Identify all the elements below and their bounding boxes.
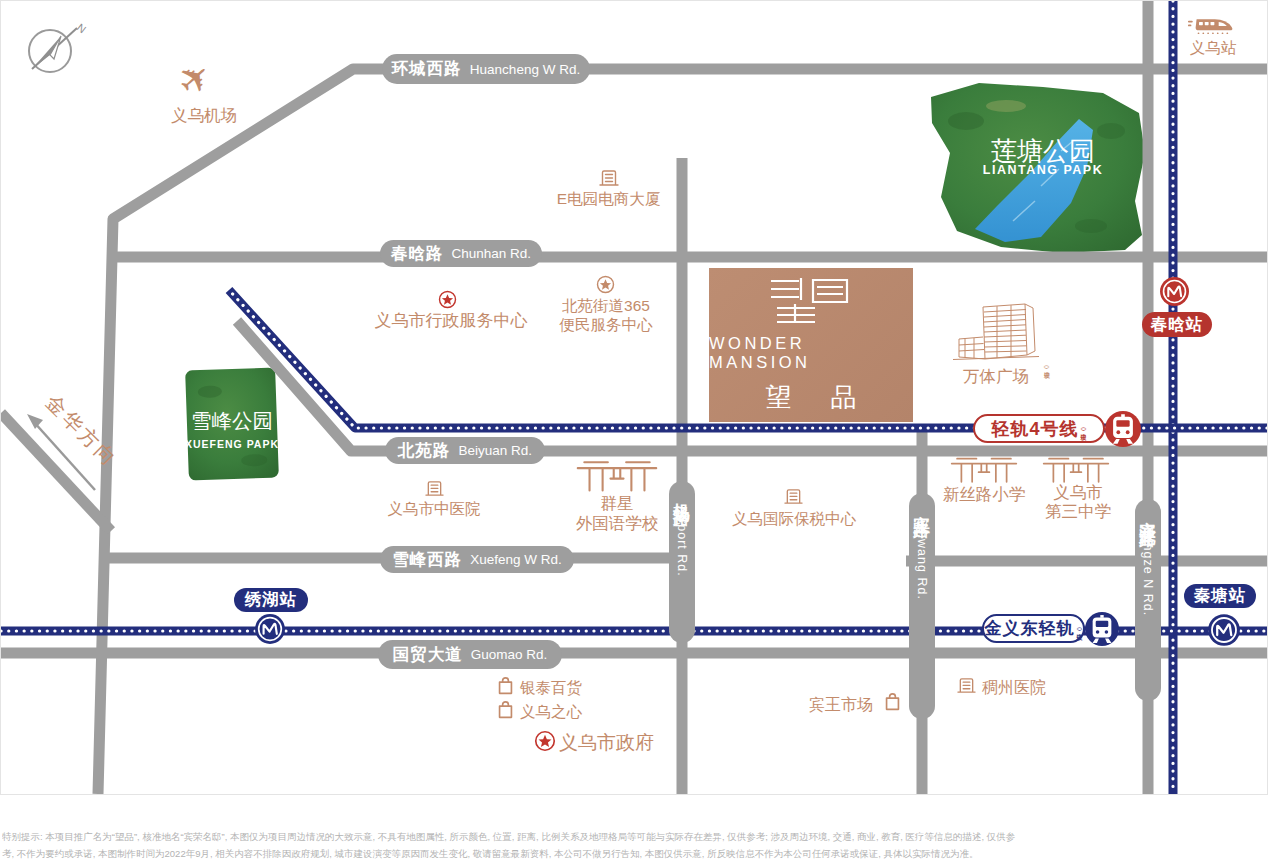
station-qintang: 秦塘站 (1184, 584, 1256, 608)
metro-logo-icon (254, 613, 286, 645)
jinyidong-badge: 金义东轻轨 (建设中) (982, 614, 1085, 643)
poi-zhongyiyuan: 义乌市中医院 (384, 500, 484, 518)
poi-chouzhou: 稠州医院 (982, 679, 1046, 697)
star-icon (596, 275, 615, 294)
road-label-binwang: 宾王路 Binwang Rd. (909, 493, 935, 719)
poi-wanti-note: (建设中) (1044, 365, 1050, 369)
train-icon (1085, 612, 1119, 646)
project-name-en: WONDER MANSION (709, 334, 913, 372)
rail4-badge: 轻轨4号线 (建设中) (973, 414, 1105, 443)
road-label-chunhan: 春晗路 Chunhan Rd. (380, 240, 542, 267)
station-chunhan: 春晗站 (1142, 312, 1212, 337)
poi-qunxing-line2: 外国语学校 (557, 514, 677, 533)
road-label-beiyuan: 北苑路 Beiyuan Rd. (385, 437, 545, 464)
poi-sanzhong-line2: 第三中学 (1028, 502, 1128, 521)
disclaimer-line2: 考, 不作为要约或承诺, 本图制作时间为2022年9月, 相关内容不排除因政府规… (2, 845, 1266, 862)
metro-logo-icon (1159, 276, 1190, 307)
poi-sanzhong-line1: 义乌市 (1028, 483, 1128, 502)
xuefeng-park-label: 雪峰公园 (182, 407, 282, 435)
poi-yiwuzhixin: 义乌之心 (520, 703, 582, 721)
train-icon (1105, 411, 1141, 447)
disclaimer-line1: 特别提示: 本项目推广名为“望品”, 核准地名“宾荣名邸”, 本图仅为项目周边情… (2, 828, 1266, 845)
building-icon (599, 167, 619, 187)
star-icon (534, 730, 556, 752)
poi-xingzheng-center: 义乌市行政服务中心 (356, 311, 546, 331)
poi-shizhengfu: 义乌市政府 (559, 732, 654, 754)
shopping-bag-icon (497, 676, 514, 695)
poi-binwang-market: 宾王市场 (809, 696, 873, 714)
poi-b365-line1: 北苑街道365 (546, 297, 666, 315)
poi-b365-line2: 便民服务中心 (546, 316, 666, 334)
school-gate-icon (573, 459, 661, 493)
poi-baoshui: 义乌国际保税中心 (724, 510, 864, 528)
station-xiuhu: 绣湖站 (234, 588, 308, 612)
road-label-zongze: 宗泽北路 Zongze N Rd. (1135, 499, 1161, 701)
wanti-building-icon (949, 299, 1045, 369)
building-icon (784, 486, 803, 505)
poi-wanti: 万体广场 (951, 367, 1041, 386)
shopping-bag-icon (884, 692, 901, 711)
school-gate-icon (1041, 456, 1111, 484)
poi-edianyuan: E电园电商大厦 (531, 190, 686, 208)
xuefeng-park-label-en: XUEFENG PAPK (182, 438, 282, 450)
road-label-guomao: 国贸大道 Guomao Rd. (378, 640, 562, 669)
shopping-bag-icon (497, 700, 514, 719)
compass-n-label: N (75, 21, 89, 35)
project-logo-icon (763, 276, 859, 324)
project-name-cn: 望 品 (749, 380, 872, 415)
poi-qunxing-line1: 群星 (557, 494, 677, 513)
star-icon (438, 290, 457, 309)
hospital-building-icon (425, 478, 444, 497)
metro-logo-icon (1207, 613, 1241, 647)
map-canvas: N ✈ 义乌机场 义乌站 环城西路 Huancheng W Rd. 春晗路 Ch… (0, 0, 1268, 863)
poi-yintai: 银泰百货 (520, 679, 582, 697)
poi-yiwu-airport: 义乌机场 (149, 106, 259, 125)
project-block: WONDER MANSION 望 品 (709, 268, 913, 422)
poi-xinsilu: 新丝路小学 (934, 485, 1034, 504)
liantang-park-label-en: LIANTANG PAPK (963, 163, 1123, 177)
road-label-huancheng: 环城西路 Huancheng W Rd. (382, 54, 590, 84)
disclaimer: 特别提示: 本项目推广名为“望品”, 核准地名“宾荣名邸”, 本图仅为项目周边情… (2, 828, 1266, 862)
poi-yiwu-station: 义乌站 (1183, 39, 1243, 57)
compass-icon: N (23, 15, 89, 81)
hospital-building-icon (957, 675, 976, 694)
road-label-xuefeng-w: 雪峰西路 Xuefeng W Rd. (380, 546, 574, 573)
school-gate-icon (949, 456, 1019, 484)
hsr-train-icon (1187, 13, 1235, 37)
map-area: N ✈ 义乌机场 义乌站 环城西路 Huancheng W Rd. 春晗路 Ch… (0, 0, 1268, 795)
